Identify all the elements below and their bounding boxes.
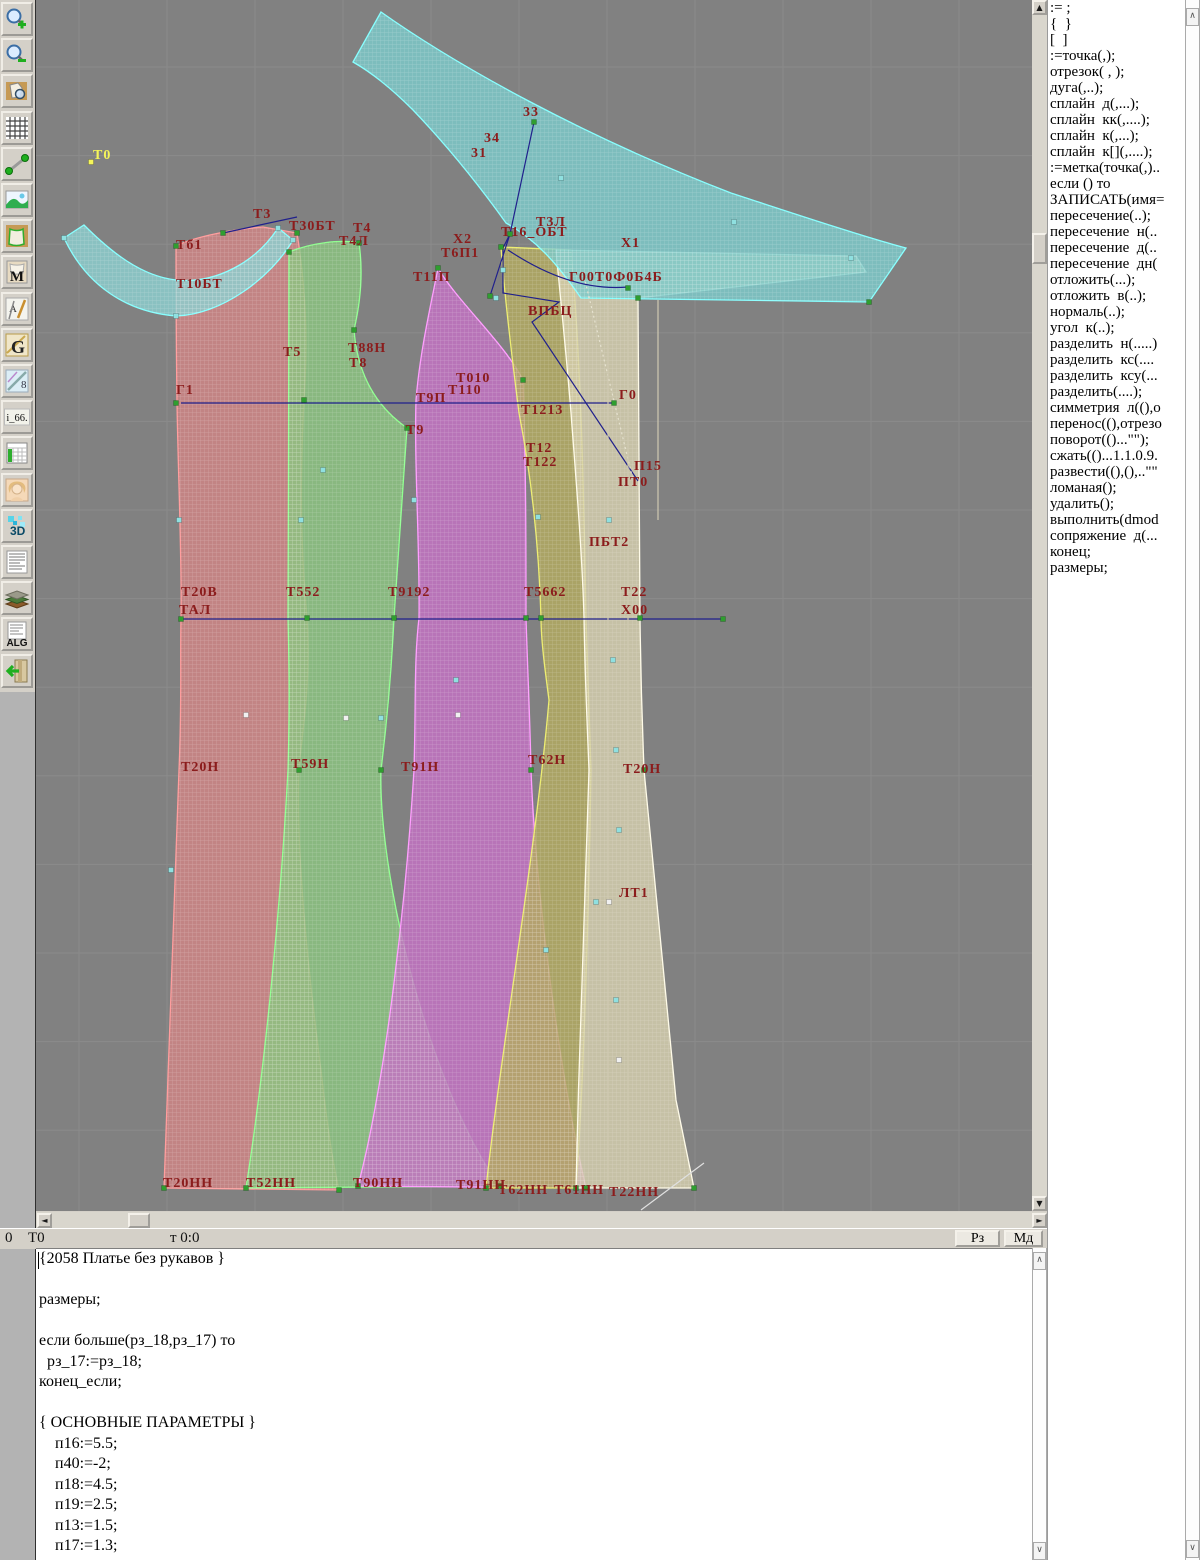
point-label: 31 [471,146,487,161]
command-item[interactable]: пересечение д(.. [1048,240,1186,256]
svg-text:i_66.: i_66. [6,413,27,424]
pattern-m-button[interactable]: M [1,255,33,289]
text-caret [38,1252,39,1269]
code-line [36,1311,1032,1332]
svg-text:3D: 3D [10,524,26,538]
command-item[interactable]: [ ] [1048,32,1186,48]
point-label: Т62Н [528,753,566,768]
command-item[interactable]: := ; [1048,0,1186,16]
point-label: Т20Н [623,762,661,777]
code-scroll-up-button[interactable]: ∧ [1033,1252,1046,1270]
exit-button[interactable] [1,654,33,688]
fabric-grain-overlay [64,12,906,1190]
point-marker [594,900,599,905]
hscroll-thumb[interactable] [128,1213,150,1228]
point-marker [337,1188,342,1193]
point-label: Х00 [621,603,648,618]
command-item[interactable]: отложить в(..); [1048,288,1186,304]
point-marker [291,238,296,243]
code-line: если больше(рз_18,рз_17) то [36,1331,1032,1352]
canvas-hscrollbar[interactable] [36,1212,1047,1228]
point-marker [379,768,384,773]
command-item[interactable]: выполнить(dmod [1048,512,1186,528]
md-button[interactable]: Мд [1004,1230,1043,1247]
point-label: Т20Н [181,760,219,775]
scroll-right-button[interactable]: ► [1032,1213,1047,1228]
code-line: п16:=5.5; [36,1434,1032,1455]
preview-button[interactable] [1,74,33,108]
point-label: 34 [484,131,500,146]
point-marker [169,868,174,873]
point-label: Т22 [621,585,647,600]
point-marker [321,468,326,473]
point-marker [544,948,549,953]
3d-button[interactable]: 3D [1,509,33,543]
code-editor[interactable]: {2058 Платье без рукавов } размеры; если… [36,1248,1032,1560]
command-item[interactable]: конец; [1048,544,1186,560]
pattern-button[interactable] [1,219,33,253]
point-marker [617,1058,622,1063]
command-item[interactable]: отложить(...); [1048,272,1186,288]
point-marker [174,401,179,406]
command-item[interactable]: пересечение н(.. [1048,224,1186,240]
command-scroll-up-button[interactable]: ∧ [1186,8,1199,26]
point-marker [454,678,459,683]
command-item[interactable]: разделить кс(.... [1048,352,1186,368]
point-label: ЛТ1 [619,886,649,901]
command-item[interactable]: размеры; [1048,560,1186,576]
command-item[interactable]: симметрия л((),о [1048,400,1186,416]
command-item[interactable]: :=метка(точка(,).. [1048,160,1186,176]
svg-text:M: M [10,269,24,285]
point-label: Т5 [283,345,301,360]
command-item[interactable]: сопряжение д(... [1048,528,1186,544]
point-marker [392,616,397,621]
pattern-icon [3,223,31,249]
command-item[interactable]: сплайн кк(,....); [1048,112,1186,128]
command-item[interactable]: пересечение(..); [1048,208,1186,224]
point-marker [62,236,67,241]
rz-button[interactable]: Рз [955,1230,1000,1247]
point-label: Г0 [619,388,637,403]
code-line: п17:=1.3; [36,1536,1032,1557]
code-line: п18:=4.5; [36,1475,1032,1496]
status-left-value: 0 [5,1230,13,1247]
zoom-in-button[interactable] [1,2,33,36]
command-item[interactable]: дуга(,..); [1048,80,1186,96]
command-item[interactable]: :=точка(,); [1048,48,1186,64]
point-marker [732,220,737,225]
toolbar: MАG8i_66.3DALG [0,0,36,692]
scroll-left-button[interactable]: ◄ [37,1213,52,1228]
point-label: ПБТ2 [589,535,629,550]
point-marker [529,768,534,773]
draw-tools-button[interactable]: А [1,292,33,326]
portrait-icon [3,477,31,503]
point-label: Т91Н [401,760,439,775]
point-label: Т4Л [339,234,369,249]
canvas-vscrollbar[interactable] [1032,0,1047,1211]
point-marker [287,250,292,255]
point-label: Т8 [349,356,367,371]
zoom-out-icon [3,42,31,68]
point-marker [559,176,564,181]
point-marker [617,828,622,833]
command-item[interactable]: сплайн д(,...); [1048,96,1186,112]
portrait-button[interactable] [1,473,33,507]
point-label: 33 [523,105,539,120]
point-marker [305,616,310,621]
point-marker [521,378,526,383]
command-item[interactable]: разделить(....); [1048,384,1186,400]
3d-icon: 3D [3,513,31,539]
svg-text:8: 8 [21,379,27,391]
point-marker [636,296,641,301]
point-marker [221,231,226,236]
point-marker [174,314,179,319]
point-label: Т6П1 [441,246,479,261]
point-label: Т122 [523,455,557,470]
alg-button[interactable]: ALG [1,617,33,651]
point-marker [612,401,617,406]
g-icon: G [3,332,31,358]
point-marker [412,498,417,503]
books-icon [3,585,31,611]
point-marker [721,617,726,622]
grid-button[interactable] [1,111,33,145]
command-item[interactable]: разделить н(.....) [1048,336,1186,352]
command-item[interactable]: ломаная(); [1048,480,1186,496]
command-item[interactable]: сплайн к(,...); [1048,128,1186,144]
point-label: Г00Т0Ф0Б4Б [569,270,663,285]
scroll-up-button[interactable]: ▲ [1032,0,1047,15]
point-label: Т20В [181,585,218,600]
point-label: Х2 [453,232,472,247]
point-marker [614,998,619,1003]
draw-tools-icon: А [3,296,31,322]
ruler-button[interactable]: 8 [1,364,33,398]
code-line: {2058 Платье без рукавов } [36,1249,1032,1270]
command-item[interactable]: ЗАПИСАТЬ(имя= [1048,192,1186,208]
point-label: Т10БТ [176,277,223,292]
i66-button[interactable]: i_66. [1,400,33,434]
point-marker [614,748,619,753]
point-label: ПТ0 [618,475,648,490]
command-item[interactable]: удалить(); [1048,496,1186,512]
code-line: п19:=2.5; [36,1495,1032,1516]
point-label: Т52НН [246,1176,296,1191]
point-label: Т9192 [388,585,430,600]
point-marker [299,518,304,523]
command-item[interactable]: перенос((),отрезо [1048,416,1186,432]
point-marker [539,616,544,621]
command-item[interactable]: нормаль(..); [1048,304,1186,320]
command-item[interactable]: если () то [1048,176,1186,192]
point-marker [611,658,616,663]
books-button[interactable] [1,581,33,615]
code-line: рз_17:=рз_18; [36,1352,1032,1373]
pattern-m-icon: M [3,259,31,285]
point-marker [867,300,872,305]
text-doc-icon [3,549,31,575]
point-label: ТАЛ [179,603,211,618]
preview-icon [3,78,31,104]
point-label: Т11П [413,270,450,285]
code-vscrollbar[interactable] [1032,1248,1047,1560]
command-vscrollbar[interactable] [1185,0,1200,1560]
point-label: Т3Л [536,215,566,230]
command-item[interactable]: разделить ксу(... [1048,368,1186,384]
point-marker [524,616,529,621]
point-label: Т88Н [348,341,386,356]
status-bar: 0 Т0 т 0:0 Рз Мд [0,1228,1047,1249]
scroll-down-button[interactable]: ▼ [1032,1196,1047,1211]
point-label: Т30БТ [289,219,336,234]
point-marker [692,1186,697,1191]
point-marker [501,268,506,273]
point-label: Т1213 [521,403,563,418]
command-item[interactable]: сжать(()...1.1.0.9. [1048,448,1186,464]
point-marker [626,286,631,291]
point-marker [607,518,612,523]
zoom-in-icon [3,6,31,32]
point-marker [456,713,461,718]
measure-button[interactable] [1,147,33,181]
status-point-label: Т0 [28,1230,45,1247]
code-line: размеры; [36,1290,1032,1311]
point-marker [494,296,499,301]
app-window: MАG8i_66.3DALG Т0333431Т3Т30БТТб1Т [0,0,1200,1560]
g-button[interactable]: G [1,328,33,362]
image-icon [3,187,31,213]
code-line [36,1270,1032,1291]
svg-text:G: G [11,337,25,357]
point-label: Т5662 [524,585,566,600]
point-marker [344,716,349,721]
i66-icon: i_66. [3,404,31,430]
point-marker [607,900,612,905]
point-label: Т90НН [353,1176,403,1191]
point-marker [532,120,537,125]
alg-icon: ALG [3,621,31,647]
command-scroll-down-button[interactable]: ∨ [1186,1540,1199,1558]
text-doc-button[interactable] [1,545,33,579]
drawing-canvas[interactable]: Т0333431Т3Т30БТТб1Т10БТТ4Т4ЛХ2Т6П1Т16_ОБ… [36,0,1032,1211]
point-marker [177,518,182,523]
point-label: Т552 [286,585,320,600]
point-marker [536,515,541,520]
svg-text:ALG: ALG [6,638,27,647]
point-label: Х1 [621,236,640,251]
command-item[interactable]: развести((),(),.."" [1048,464,1186,480]
point-marker [379,716,384,721]
point-label: Т22НН [609,1185,659,1200]
image-button[interactable] [1,183,33,217]
point-marker [849,256,854,261]
command-item[interactable]: { } [1048,16,1186,32]
point-label: Т3 [253,207,271,222]
code-line: п40:=-2; [36,1454,1032,1475]
point-marker [244,713,249,718]
command-list-panel: := ;{ }[ ]:=точка(,);отрезок( , );дуга(,… [1047,0,1186,1560]
point-marker [352,328,357,333]
point-label: Т59Н [291,757,329,772]
command-item[interactable]: пересечение дн( [1048,256,1186,272]
zoom-out-button[interactable] [1,38,33,72]
command-item[interactable]: отрезок( , ); [1048,64,1186,80]
point-label: Г1 [176,383,194,398]
toolbar-spacer [0,692,36,1560]
point-label: ВПБЦ [528,304,572,319]
point-label: Т62НН [498,1183,548,1198]
grid-icon [3,115,31,141]
code-scroll-down-button[interactable]: ∨ [1033,1542,1046,1560]
code-line: п13:=1.5; [36,1516,1032,1537]
code-line: { ОСНОВНЫЕ ПАРАМЕТРЫ } [36,1413,1032,1434]
point-label: Т9 [406,423,424,438]
code-line [36,1393,1032,1414]
status-cursor-readout: т 0:0 [170,1230,199,1247]
point-marker [499,245,504,250]
point-marker [276,226,281,231]
point-label: П15 [634,459,662,474]
command-item[interactable]: сплайн к[](,....); [1048,144,1186,160]
command-item[interactable]: поворот(()...""); [1048,432,1186,448]
point-label: Т12 [526,441,552,456]
vscroll-thumb[interactable] [1032,233,1047,264]
command-item[interactable]: угол к(..); [1048,320,1186,336]
ruler-icon: 8 [3,368,31,394]
point-label: Т9П [416,391,446,406]
point-marker [302,398,307,403]
table-icon [3,440,31,466]
exit-icon [3,658,31,684]
point-label: Т0 [93,148,111,163]
point-label: Т110 [448,383,482,398]
code-line: конец_если; [36,1372,1032,1393]
measure-icon [3,151,31,177]
point-marker [488,294,493,299]
point-label: Т61НН [554,1183,604,1198]
table-button[interactable] [1,436,33,470]
point-label: Тб1 [176,238,202,253]
point-label: Т20НН [163,1176,213,1191]
